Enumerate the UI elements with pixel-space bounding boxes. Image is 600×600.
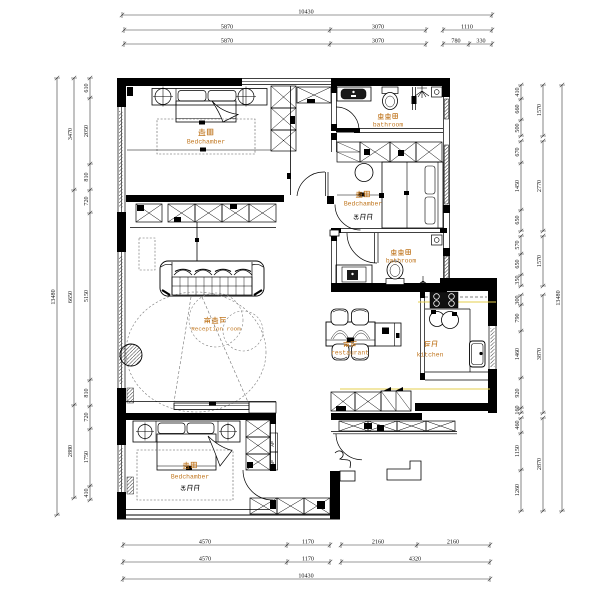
svg-text:650: 650	[515, 259, 521, 268]
svg-text:160: 160	[515, 405, 521, 414]
svg-text:2770: 2770	[537, 180, 543, 192]
svg-text:AP: AP	[270, 460, 275, 466]
svg-text:Bedchamber: Bedchamber	[171, 474, 210, 481]
svg-text:4320: 4320	[409, 556, 421, 562]
svg-text:13480: 13480	[556, 290, 562, 305]
svg-text:720: 720	[84, 412, 90, 421]
svg-text:6650: 6650	[68, 291, 74, 303]
svg-text:1750: 1750	[84, 451, 90, 463]
svg-text:bathroom: bathroom	[373, 122, 403, 129]
svg-text:13480: 13480	[51, 289, 57, 304]
svg-text:720: 720	[84, 196, 90, 205]
svg-text:10430: 10430	[298, 9, 313, 15]
svg-text:410: 410	[515, 87, 521, 96]
svg-text:5150: 5150	[84, 290, 90, 302]
svg-text:2160: 2160	[372, 539, 384, 545]
svg-text:610: 610	[84, 83, 90, 92]
svg-text:3070: 3070	[372, 24, 384, 30]
svg-text:5870: 5870	[221, 24, 233, 30]
svg-text:Bedchamber: Bedchamber	[344, 201, 383, 208]
svg-text:1570: 1570	[537, 104, 543, 116]
svg-text:810: 810	[84, 172, 90, 181]
svg-text:AP: AP	[270, 441, 275, 447]
svg-text:2160: 2160	[447, 539, 459, 545]
svg-text:670: 670	[515, 147, 521, 156]
svg-text:780: 780	[451, 38, 460, 44]
svg-text:410: 410	[84, 488, 90, 497]
svg-text:1460: 1460	[515, 348, 521, 360]
svg-text:3470: 3470	[68, 128, 74, 140]
svg-text:4570: 4570	[199, 556, 211, 562]
svg-text:10430: 10430	[298, 573, 313, 579]
svg-text:5870: 5870	[221, 38, 233, 44]
svg-text:3070: 3070	[372, 38, 384, 44]
svg-text:1170: 1170	[302, 556, 314, 562]
svg-text:1150: 1150	[515, 445, 521, 457]
svg-text:kitchen: kitchen	[417, 352, 444, 359]
svg-text:1170: 1170	[302, 539, 314, 545]
svg-text:330: 330	[476, 38, 485, 44]
svg-text:460: 460	[515, 420, 521, 429]
svg-text:660: 660	[515, 104, 521, 113]
svg-text:920: 920	[515, 388, 521, 397]
svg-text:570: 570	[515, 240, 521, 249]
svg-text:Reception room: Reception room	[191, 326, 241, 333]
svg-text:300: 300	[515, 295, 521, 304]
svg-text:1450: 1450	[515, 180, 521, 192]
svg-text:810: 810	[84, 388, 90, 397]
svg-text:650: 650	[515, 215, 521, 224]
svg-text:restaurant: restaurant	[331, 350, 369, 357]
svg-text:bathroom: bathroom	[386, 258, 416, 265]
svg-text:790: 790	[515, 313, 521, 322]
svg-text:1110: 1110	[461, 24, 473, 30]
svg-text:Bedchamber: Bedchamber	[187, 139, 226, 146]
svg-text:1260: 1260	[515, 484, 521, 496]
svg-text:2880: 2880	[68, 445, 74, 457]
svg-text:1570: 1570	[537, 255, 543, 267]
svg-text:3870: 3870	[537, 348, 543, 360]
svg-text:2870: 2870	[537, 458, 543, 470]
svg-text:2050: 2050	[84, 125, 90, 137]
svg-text:4570: 4570	[199, 539, 211, 545]
svg-text:350: 350	[515, 275, 521, 284]
svg-text:500: 500	[515, 123, 521, 132]
